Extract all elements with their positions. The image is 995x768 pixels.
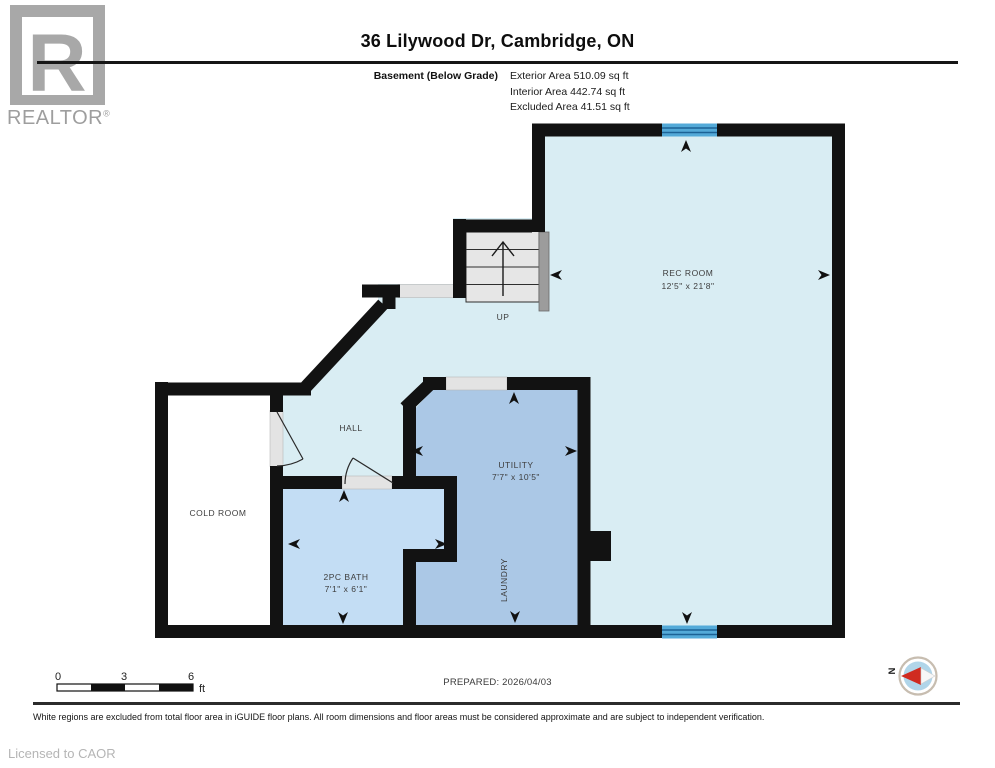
license-text: Licensed to CAOR <box>8 746 116 761</box>
realtor-logo-icon: R <box>10 5 105 105</box>
bath-dims: 7'1" x 6'1" <box>325 584 368 594</box>
hall-label: HALL <box>339 423 362 433</box>
realtor-wordmark-text: REALTOR <box>7 107 103 129</box>
interior-area-value: Interior Area 442.74 sq ft <box>510 86 625 98</box>
staircase <box>466 231 549 311</box>
cold-room-label: COLD ROOM <box>190 508 247 518</box>
bath-label: 2PC BATH <box>324 572 369 582</box>
registered-trademark-symbol: ® <box>103 108 110 118</box>
footer-divider <box>33 702 960 705</box>
disclaimer-text: White regions are excluded from total fl… <box>33 712 764 722</box>
hall-stairs-opening <box>398 285 454 298</box>
page-title: 36 Lilywood Dr, Cambridge, ON <box>0 31 995 52</box>
excluded-area-value: Excluded Area 41.51 sq ft <box>510 101 630 113</box>
prepared-date: PREPARED: 2026/04/03 <box>0 677 995 688</box>
rec-room-label: REC ROOM <box>663 268 714 278</box>
title-divider <box>37 61 958 64</box>
realtor-logo: R <box>10 5 105 110</box>
stairs-railing <box>539 232 549 311</box>
compass-north-label: N <box>887 667 898 674</box>
floor-label: Basement (Below Grade) <box>0 70 498 82</box>
floor-plan-page: REC ROOM 12'5" x 21'8" UTILITY 7'7" x 10… <box>0 0 995 768</box>
compass: N <box>887 658 937 695</box>
window-top-glass <box>662 124 717 137</box>
floor-plan-canvas: REC ROOM 12'5" x 21'8" UTILITY 7'7" x 10… <box>0 0 995 768</box>
utility-door-opening <box>446 377 507 390</box>
laundry-label: LAUNDRY <box>499 558 509 602</box>
window-bottom-glass <box>662 626 717 639</box>
window-top <box>662 124 717 137</box>
window-bottom <box>662 626 717 639</box>
exterior-area-value: Exterior Area 510.09 sq ft <box>510 70 628 82</box>
realtor-wordmark: REALTOR® <box>7 107 110 130</box>
chimney-bump <box>589 531 611 561</box>
utility-label: UTILITY <box>498 460 533 470</box>
rec-room-dims: 12'5" x 21'8" <box>661 281 714 291</box>
utility-dims: 7'7" x 10'5" <box>492 472 540 482</box>
stairs-up-label: UP <box>497 312 510 322</box>
